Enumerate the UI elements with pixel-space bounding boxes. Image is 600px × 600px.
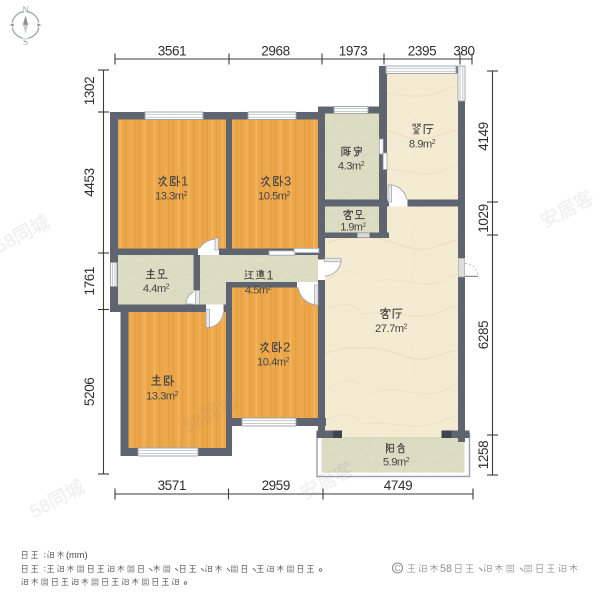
svg-text:1258: 1258 <box>476 441 491 469</box>
svg-text:8.9m2: 8.9m2 <box>409 139 436 151</box>
svg-text:1973: 1973 <box>339 44 367 59</box>
svg-text:4.3m2: 4.3m2 <box>338 161 365 173</box>
svg-text:1302: 1302 <box>82 77 97 105</box>
svg-text:4.5m2: 4.5m2 <box>245 285 272 297</box>
svg-text:C: C <box>395 564 401 573</box>
svg-text:3571: 3571 <box>158 478 186 493</box>
svg-text:2968: 2968 <box>261 44 289 59</box>
svg-text:13.3m2: 13.3m2 <box>155 191 188 203</box>
svg-text:3561: 3561 <box>158 44 186 59</box>
svg-text:13.3m2: 13.3m2 <box>146 391 179 403</box>
svg-text:2395: 2395 <box>408 44 436 59</box>
svg-text:58同城: 58同城 <box>25 475 88 523</box>
svg-text:58: 58 <box>440 563 452 575</box>
svg-text:10.5m2: 10.5m2 <box>258 191 291 203</box>
svg-text:S: S <box>23 38 28 48</box>
svg-text:5.9m2: 5.9m2 <box>383 457 410 469</box>
svg-text:2: 2 <box>283 340 290 355</box>
svg-text:4453: 4453 <box>82 168 97 196</box>
svg-text:6285: 6285 <box>476 321 491 349</box>
svg-text:4749: 4749 <box>384 478 412 493</box>
svg-text:58同城: 58同城 <box>0 210 53 258</box>
svg-text:1: 1 <box>267 268 274 283</box>
svg-text:(mm): (mm) <box>66 550 88 560</box>
svg-text:4.4m2: 4.4m2 <box>143 283 170 295</box>
svg-text:3: 3 <box>284 174 291 189</box>
svg-text:5206: 5206 <box>82 378 97 406</box>
svg-text:380: 380 <box>453 44 474 59</box>
svg-text:10.4m2: 10.4m2 <box>257 357 290 369</box>
svg-text:1761: 1761 <box>82 267 97 295</box>
svg-text:1029: 1029 <box>476 204 491 232</box>
svg-text:1: 1 <box>181 174 188 189</box>
svg-text:4149: 4149 <box>476 122 491 150</box>
svg-text:N: N <box>22 6 29 16</box>
svg-text:27.7m2: 27.7m2 <box>375 323 408 335</box>
svg-text:2959: 2959 <box>262 478 290 493</box>
svg-text:安居客: 安居客 <box>536 185 598 233</box>
